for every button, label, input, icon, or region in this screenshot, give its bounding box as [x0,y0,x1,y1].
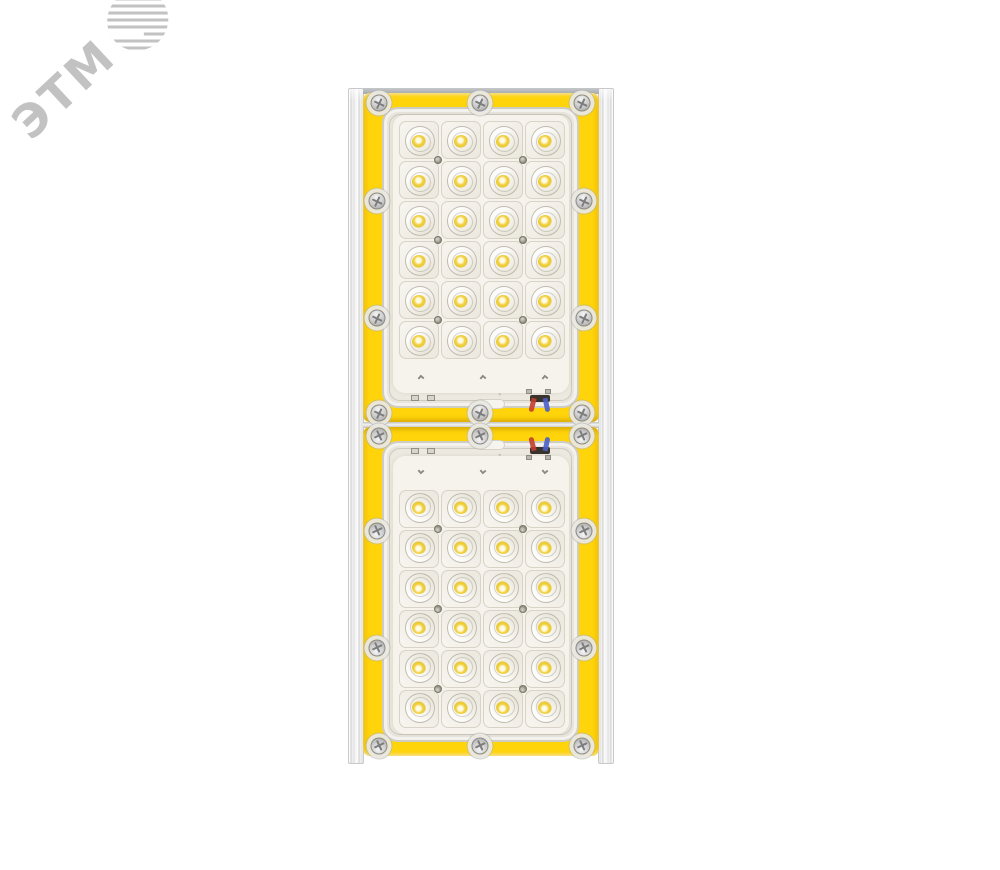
solder-tab [545,455,551,460]
led-lens-cell [525,490,565,528]
led-chip [538,541,552,554]
led-chip [454,581,468,594]
led-chip [454,541,468,554]
led-lens-cell [441,610,481,648]
led-chip [496,501,510,514]
led-chip [538,215,552,228]
led-chip [496,621,510,634]
led-chip [538,661,552,674]
led-chip [454,255,468,268]
led-chip [454,701,468,714]
led-chip [412,135,426,148]
led-lens-cell [525,281,565,319]
led-lens-cell [441,570,481,608]
board-screw [434,525,442,533]
led-chip [454,661,468,674]
led-chip [412,621,426,634]
led-lens-cell [525,610,565,648]
product-photo: ЭТМ [0,0,1000,870]
led-lens-cell [399,121,439,159]
led-lens-cell [483,650,523,688]
led-lens-cell [441,321,481,359]
board-screw [519,685,527,693]
smd-component [411,395,419,401]
led-lens-cell [441,201,481,239]
board-screw [519,236,527,244]
led-chip [496,215,510,228]
led-chip [538,335,552,348]
led-lens-cell [399,690,439,728]
led-chip [496,135,510,148]
led-lens-cell [441,241,481,279]
led-chip [412,335,426,348]
led-chip [454,501,468,514]
led-lens-cell [441,690,481,728]
led-lens-cell [483,490,523,528]
led-lens-cell [483,121,523,159]
led-lens-cell [441,121,481,159]
led-lens-cell [525,321,565,359]
led-lens-cell [525,530,565,568]
led-chip [496,541,510,554]
led-lens-cell [483,201,523,239]
smd-component [427,395,435,401]
led-chip [412,661,426,674]
led-lens-cell [483,530,523,568]
board-screw [434,236,442,244]
led-chip [412,215,426,228]
led-lens-cell [483,161,523,199]
led-chip [538,175,552,188]
led-lens-cell [525,570,565,608]
led-lens-cell [441,530,481,568]
led-chip [538,581,552,594]
module-bottom [363,427,599,756]
led-chip [454,295,468,308]
led-lens-cell [525,121,565,159]
led-grid [399,121,565,359]
led-chip [538,501,552,514]
solder-tab [526,389,532,394]
led-chip [412,295,426,308]
led-chip [454,215,468,228]
led-lens-cell [399,321,439,359]
led-lens-cell [441,490,481,528]
led-lens-cell [441,161,481,199]
led-chip [412,255,426,268]
led-chip [538,621,552,634]
led-chip [538,135,552,148]
board-screw [434,685,442,693]
led-chip [454,335,468,348]
board-screw [519,156,527,164]
led-lens-cell [399,281,439,319]
wire-assembly [523,436,559,460]
led-grid [399,490,565,728]
led-chip [496,661,510,674]
led-chip [412,501,426,514]
led-chip [538,255,552,268]
led-lens-cell [399,570,439,608]
led-luminaire [348,88,614,764]
led-lens-cell [483,321,523,359]
smd-component [427,448,435,454]
led-lens-cell [525,161,565,199]
led-chip [412,701,426,714]
solder-tab [526,455,532,460]
wire-assembly [523,389,559,413]
solder-tab [545,389,551,394]
smd-component [411,448,419,454]
led-lens-cell [399,241,439,279]
led-chip [412,175,426,188]
led-chip [496,701,510,714]
led-chip [496,581,510,594]
led-lens-cell [525,241,565,279]
board-screw [519,605,527,613]
led-lens-cell [399,161,439,199]
led-chip [496,175,510,188]
module-top [363,93,599,422]
led-chip [412,581,426,594]
led-lens-cell [441,650,481,688]
heatsink-rail-left [348,88,364,764]
led-lens-cell [399,610,439,648]
led-chip [538,701,552,714]
led-lens-cell [399,650,439,688]
board-screw [519,316,527,324]
led-chip [538,295,552,308]
led-lens-cell [525,690,565,728]
heatsink-rail-right [598,88,614,764]
led-lens-cell [483,241,523,279]
led-chip [454,621,468,634]
board-screw [519,525,527,533]
board-screw [434,605,442,613]
led-lens-cell [483,610,523,648]
watermark-text: ЭТМ [4,31,123,146]
led-lens-cell [399,201,439,239]
led-chip [412,541,426,554]
led-lens-cell [483,281,523,319]
board-screw [434,156,442,164]
led-lens-cell [525,201,565,239]
led-lens-cell [525,650,565,688]
etm-watermark: ЭТМ [0,0,181,152]
led-lens-cell [441,281,481,319]
led-lens-cell [483,570,523,608]
led-chip [496,335,510,348]
led-lens-cell [399,530,439,568]
led-lens-cell [399,490,439,528]
led-chip [454,135,468,148]
led-chip [496,295,510,308]
board-screw [434,316,442,324]
led-chip [496,255,510,268]
led-chip [454,175,468,188]
led-lens-cell [483,690,523,728]
